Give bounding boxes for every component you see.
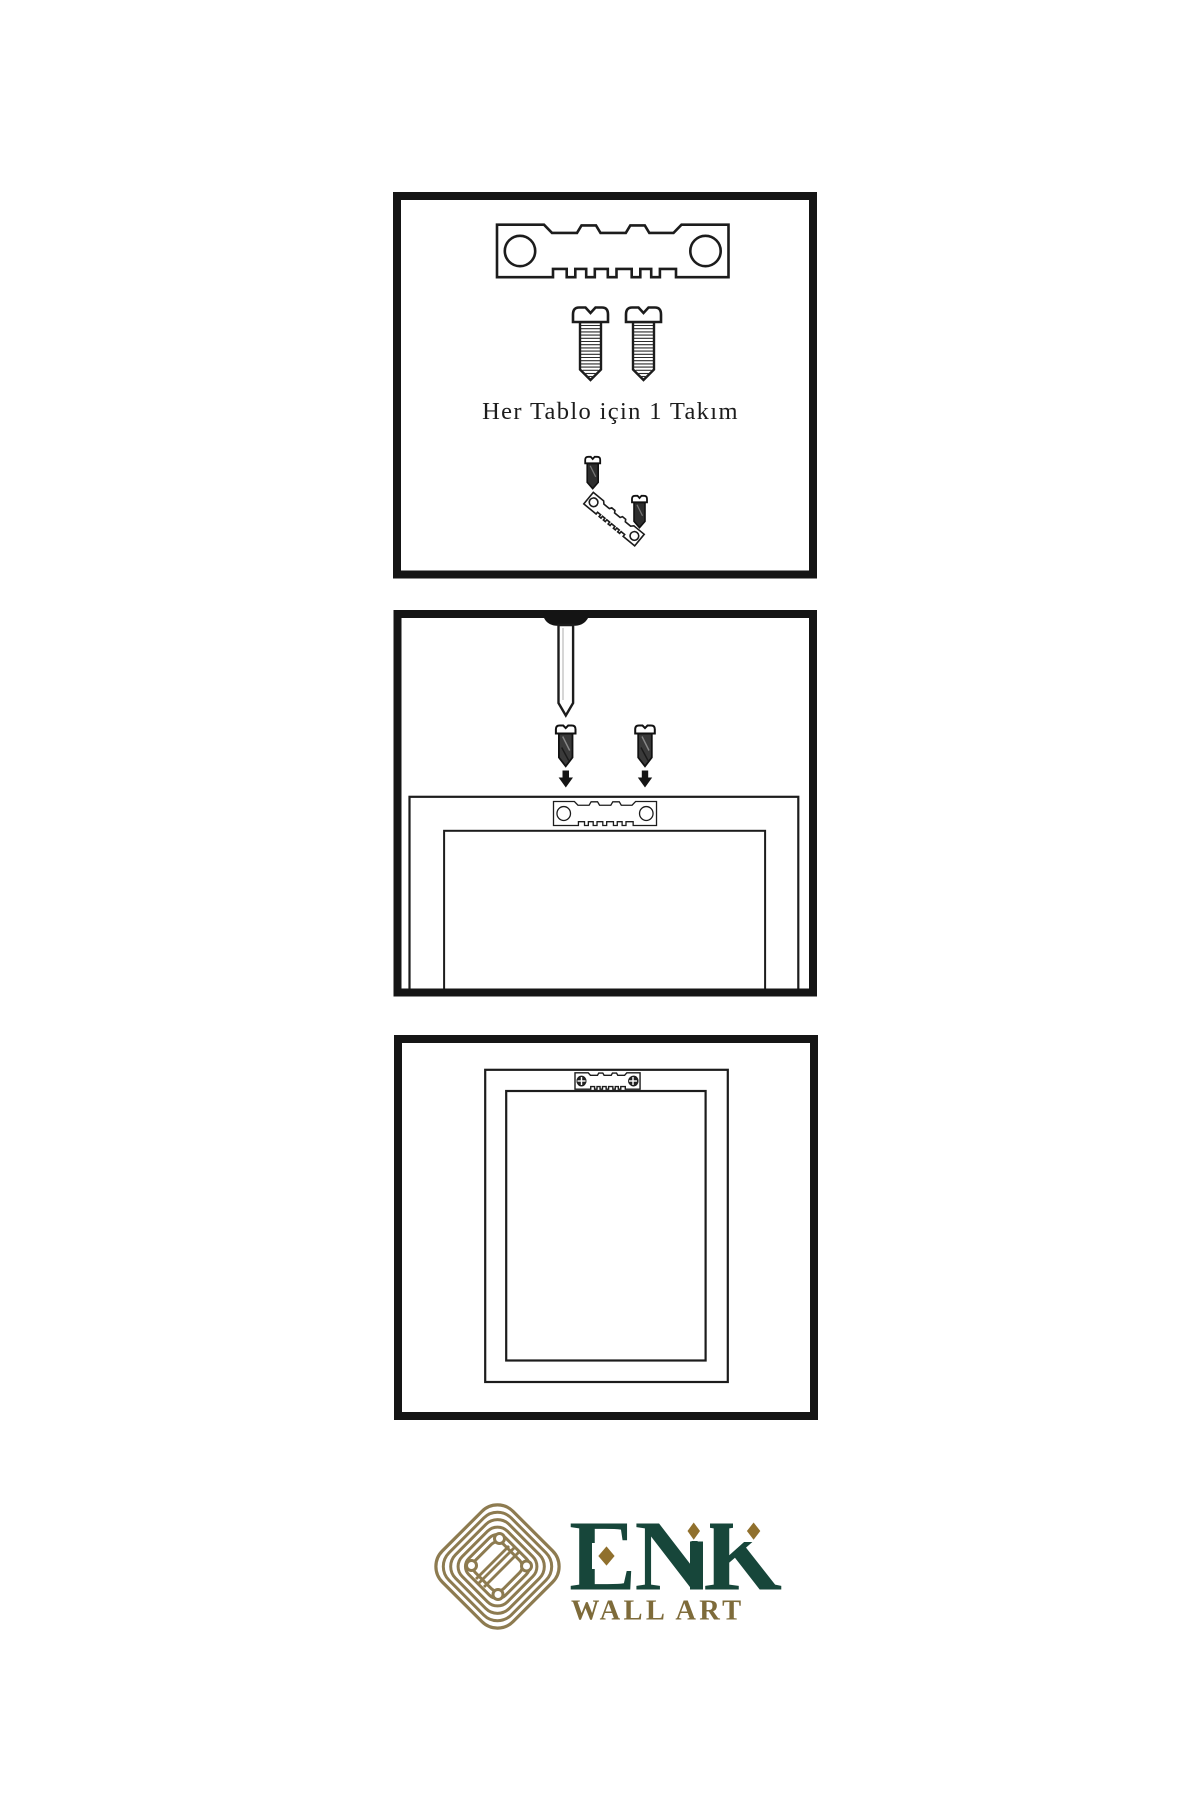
svg-text:WALL ART: WALL ART xyxy=(571,1596,745,1627)
svg-text:Her Tablo için 1 Takım: Her Tablo için 1 Takım xyxy=(482,398,739,425)
